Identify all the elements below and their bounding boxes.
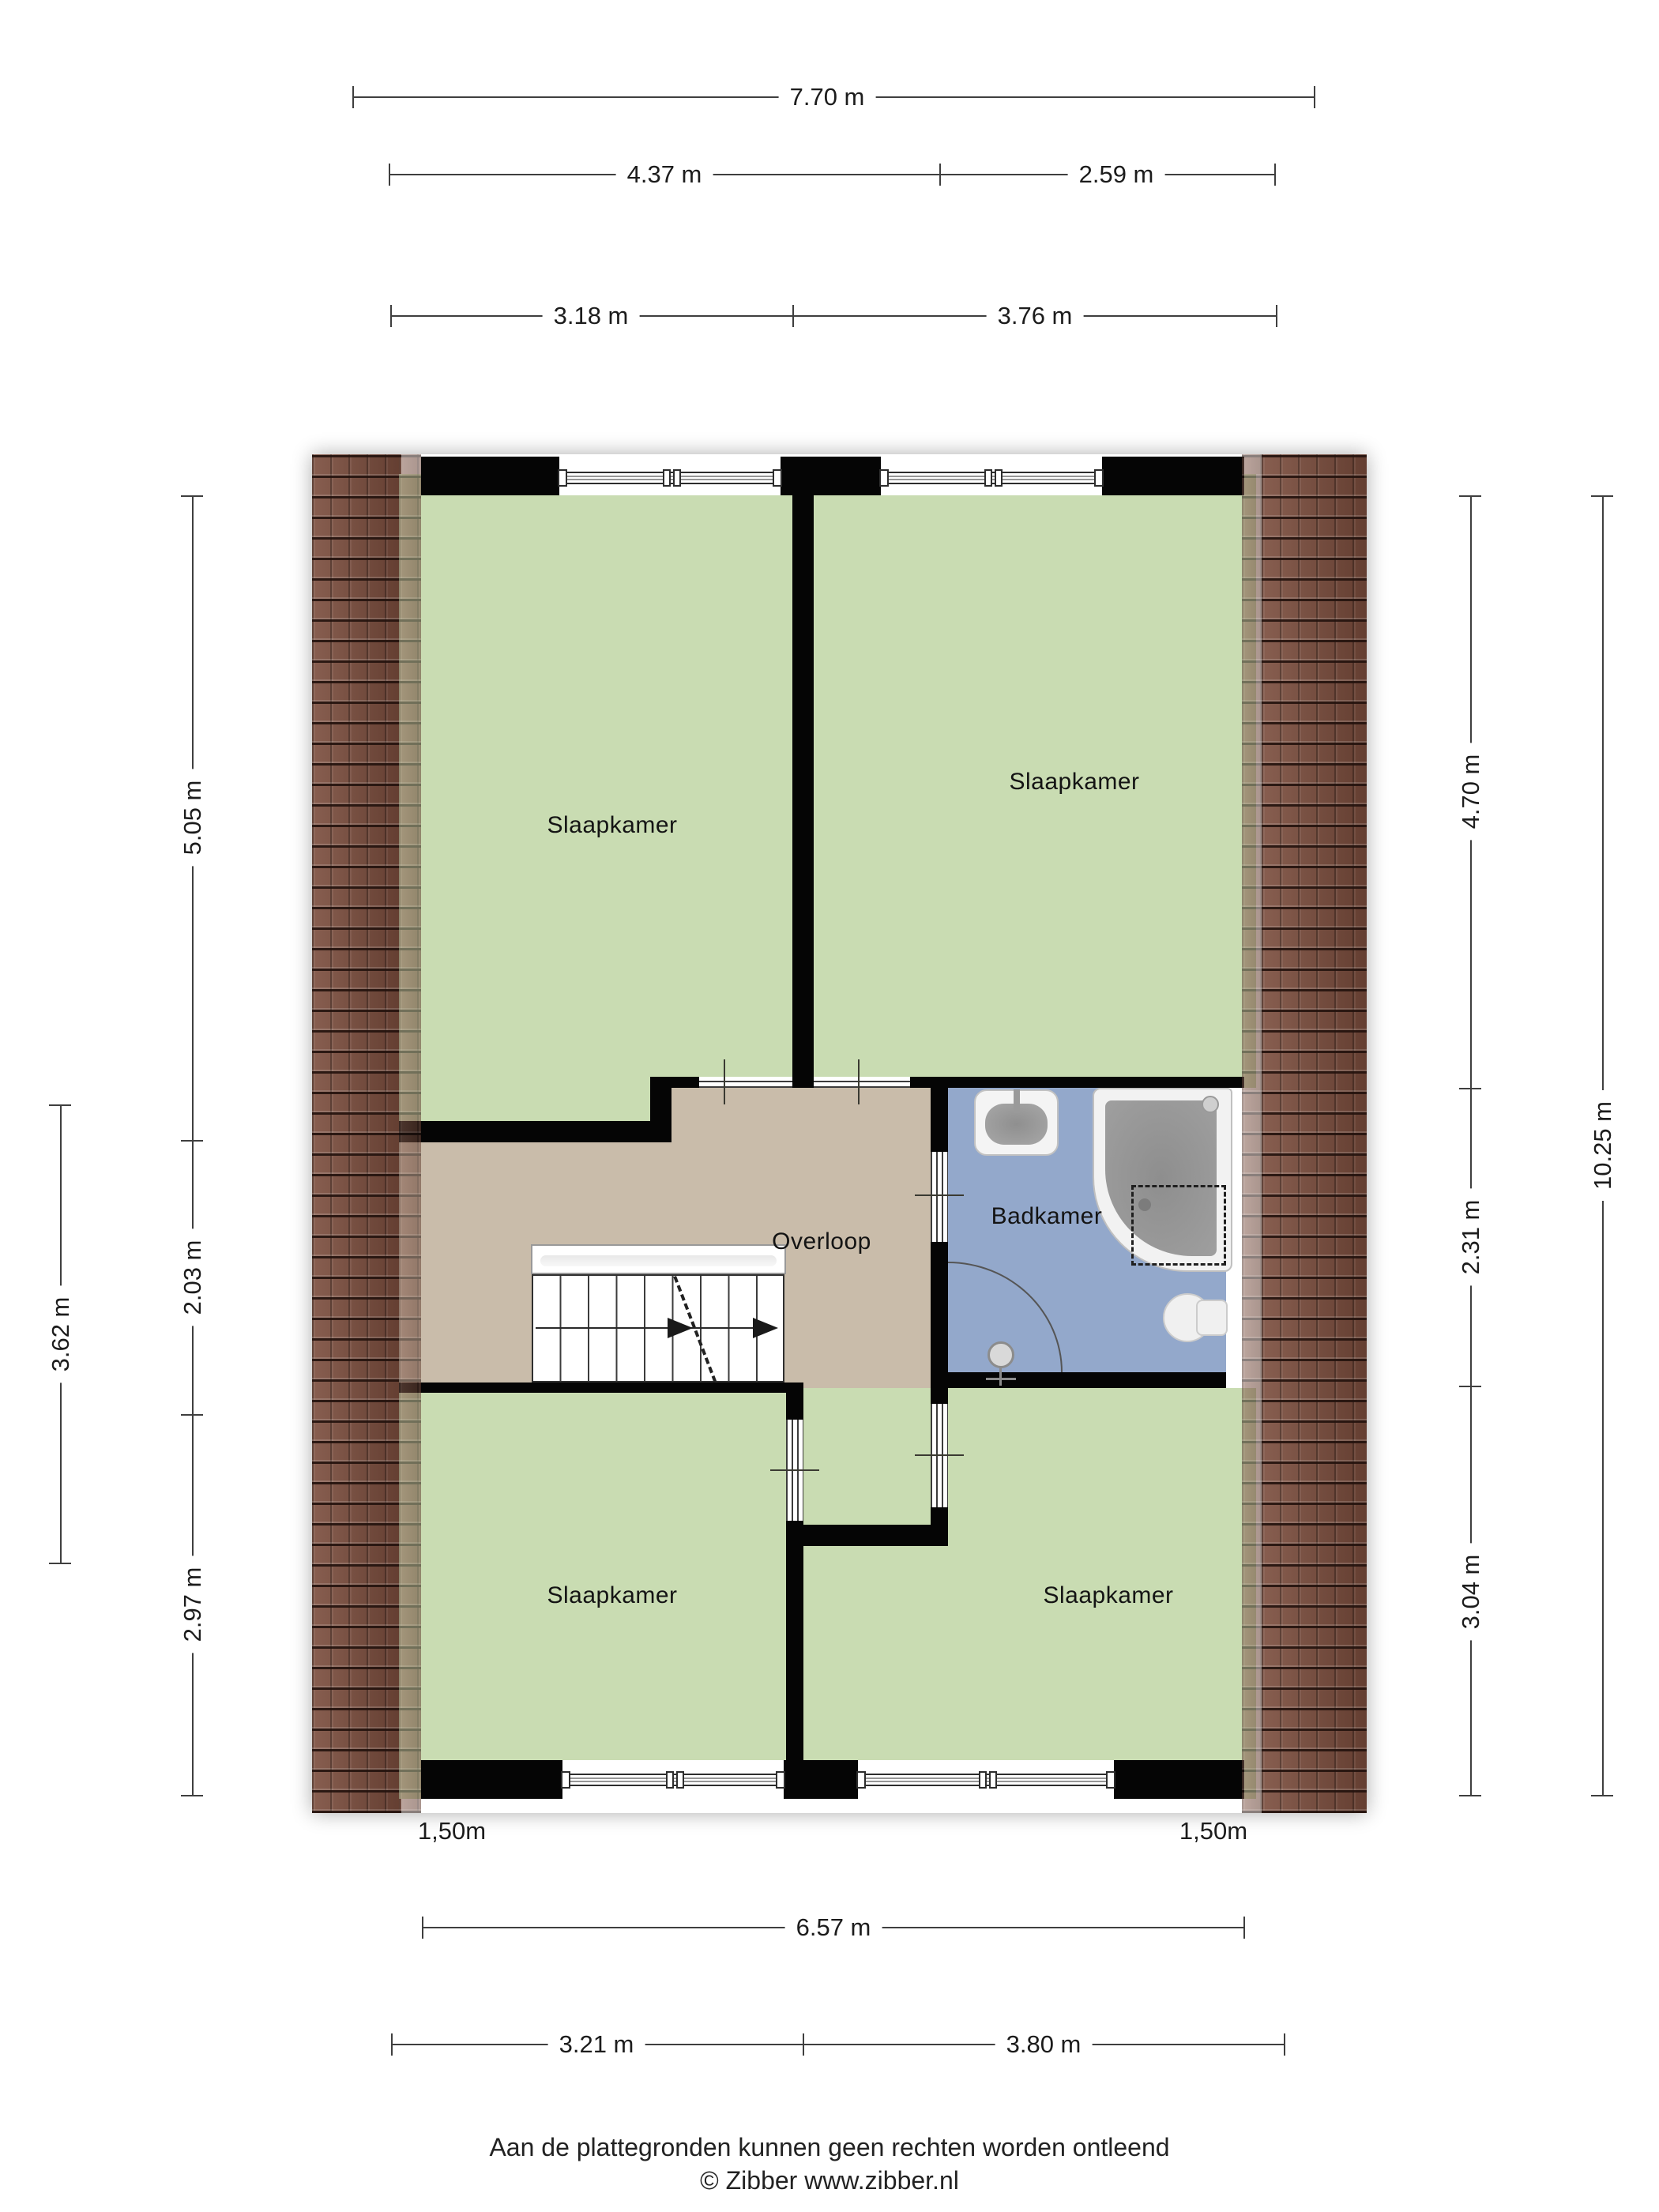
- stair-railing-inner: [540, 1255, 777, 1266]
- wall-bathroom-south: [948, 1372, 1226, 1388]
- window-mullion: [995, 469, 1003, 487]
- door-tick: [770, 1469, 819, 1471]
- dim-tick: [422, 1917, 423, 1939]
- room-label-bathroom: Badkamer: [991, 1203, 1103, 1230]
- stair-direction-line: [536, 1327, 760, 1329]
- window-cap: [773, 469, 782, 487]
- sink-faucet: [1014, 1089, 1020, 1113]
- wall-bathroom-west: [931, 1088, 948, 1152]
- window-cap: [776, 1771, 785, 1789]
- wall-bedroom-tl-bottom: [399, 1121, 671, 1142]
- floorplan-page: 7.70 m 4.37 m 2.59 m 3.18 m 3.76 m 5.05 …: [0, 0, 1659, 2212]
- dim-line: [390, 315, 1277, 317]
- room-label-bedroom-top-right: Slaapkamer: [1009, 769, 1139, 796]
- dim-label: 3.62 m: [47, 1286, 75, 1383]
- wall-divider-bottom-upper: [786, 1382, 803, 1420]
- door-tick: [858, 1059, 860, 1104]
- door-bathroom: [931, 1152, 948, 1242]
- wall-bottom-pier-right: [1114, 1760, 1244, 1799]
- room-label-landing: Overloop: [772, 1228, 871, 1255]
- wall-landing-north-left: [671, 1077, 699, 1088]
- dim-tick: [1314, 86, 1315, 108]
- dim-tick: [352, 86, 354, 108]
- stair-arrowhead: [668, 1318, 693, 1338]
- wall-top-pier-left: [421, 457, 559, 495]
- dim-tick: [181, 1414, 203, 1416]
- eave-label-left: 1,50m: [418, 1817, 486, 1845]
- dim-tick: [1591, 495, 1613, 497]
- shower-head-stem: [999, 1367, 1002, 1386]
- window-mullion: [673, 469, 681, 487]
- dim-label: 4.37 m: [616, 160, 713, 189]
- dim-tick: [792, 305, 794, 327]
- window-cap: [1106, 1771, 1115, 1789]
- footer-copyright: © Zibber www.zibber.nl: [700, 2166, 959, 2195]
- dim-tick: [803, 2033, 804, 2056]
- wall-bathroom-north: [910, 1077, 1244, 1088]
- dim-tick: [181, 1140, 203, 1142]
- dim-tick: [49, 1104, 71, 1106]
- door-tick: [915, 1194, 964, 1196]
- dim-tick: [1591, 1795, 1613, 1796]
- wall-top-pier-center: [781, 457, 881, 495]
- dim-label: 3.21 m: [548, 2030, 645, 2059]
- dim-label: 3.80 m: [995, 2030, 1093, 2059]
- wall-bedroom-bl-top: [399, 1382, 786, 1393]
- roof-tiles-left: [312, 454, 401, 1813]
- roof-tiles-right: [1262, 454, 1367, 1813]
- dim-label: 2.31 m: [1457, 1189, 1485, 1286]
- room-label-bedroom-top-left: Slaapkamer: [547, 812, 677, 839]
- stair-railing: [531, 1244, 786, 1274]
- wall-neck-south: [786, 1525, 948, 1546]
- stair-arrowhead: [753, 1318, 778, 1338]
- shower-head-bar: [986, 1378, 1016, 1380]
- toilet-tank: [1196, 1300, 1228, 1336]
- dim-tick: [181, 495, 203, 497]
- wall-bedroom-tl-step: [650, 1077, 671, 1142]
- dim-label: 2.03 m: [179, 1229, 207, 1326]
- wall-divider-bottom-lower: [786, 1521, 803, 1760]
- window-mullion: [676, 1771, 684, 1789]
- window-cap: [879, 469, 889, 487]
- shower-zone-dashed: [1131, 1185, 1226, 1266]
- floor-bedroom-bottom-right: [803, 1388, 1256, 1799]
- dim-tick: [1459, 1386, 1481, 1387]
- dim-tick: [49, 1563, 71, 1564]
- eave-label-right: 1,50m: [1179, 1817, 1247, 1845]
- dim-tick: [390, 305, 392, 327]
- wall-divider-top-bedrooms: [792, 495, 814, 1088]
- dim-tick: [939, 164, 941, 186]
- dim-tick: [1459, 495, 1481, 497]
- window-mullion: [666, 1771, 674, 1789]
- shower-head: [987, 1341, 1014, 1368]
- wall-top-pier-right: [1102, 457, 1244, 495]
- dim-label: 5.05 m: [179, 769, 207, 867]
- dim-label: 7.70 m: [779, 83, 876, 111]
- door-bedroom-top-left: [699, 1077, 792, 1088]
- dim-tick: [1276, 305, 1277, 327]
- door-bedroom-top-right: [814, 1077, 910, 1088]
- dim-label: 3.76 m: [987, 302, 1084, 330]
- dim-tick: [181, 1795, 203, 1796]
- dim-label: 3.04 m: [1457, 1544, 1485, 1641]
- dim-line: [391, 2044, 1285, 2045]
- sink: [974, 1089, 1059, 1156]
- dim-tick: [1284, 2033, 1285, 2056]
- room-label-bedroom-bottom-left: Slaapkamer: [547, 1582, 677, 1609]
- window-mullion: [989, 1771, 997, 1789]
- window-cap: [856, 1771, 866, 1789]
- dim-tick: [391, 2033, 393, 2056]
- bathtub-faucet: [1202, 1096, 1219, 1113]
- dim-tick: [1459, 1088, 1481, 1089]
- wall-bottom-pier-left: [421, 1760, 562, 1799]
- window-cap: [558, 469, 567, 487]
- dim-label: 2.97 m: [179, 1556, 207, 1653]
- dim-label: 6.57 m: [785, 1913, 882, 1942]
- roof-overhang-right: [1242, 454, 1262, 1813]
- dim-tick: [1459, 1795, 1481, 1796]
- door-tick: [915, 1454, 964, 1456]
- dim-label: 10.25 m: [1589, 1090, 1617, 1201]
- wall-bottom-pier-center: [784, 1760, 858, 1799]
- dim-tick: [1243, 1917, 1245, 1939]
- window-mullion: [663, 469, 671, 487]
- window-mullion: [984, 469, 992, 487]
- window-cap: [561, 1771, 570, 1789]
- door-tick: [724, 1059, 725, 1104]
- dim-label: 2.59 m: [1068, 160, 1165, 189]
- wall-bathroom-west-lower: [931, 1242, 948, 1404]
- dim-label: 3.18 m: [543, 302, 640, 330]
- dim-tick: [389, 164, 390, 186]
- window-cap: [1094, 469, 1104, 487]
- footer-disclaimer: Aan de plattegronden kunnen geen rechten…: [489, 2133, 1169, 2162]
- dim-tick: [1274, 164, 1276, 186]
- room-label-bedroom-bottom-right: Slaapkamer: [1043, 1582, 1173, 1609]
- window-mullion: [979, 1771, 987, 1789]
- floor-bedroom-top-left: [399, 474, 794, 1142]
- dim-label: 4.70 m: [1457, 743, 1485, 841]
- roof-overhang-left: [399, 454, 421, 1813]
